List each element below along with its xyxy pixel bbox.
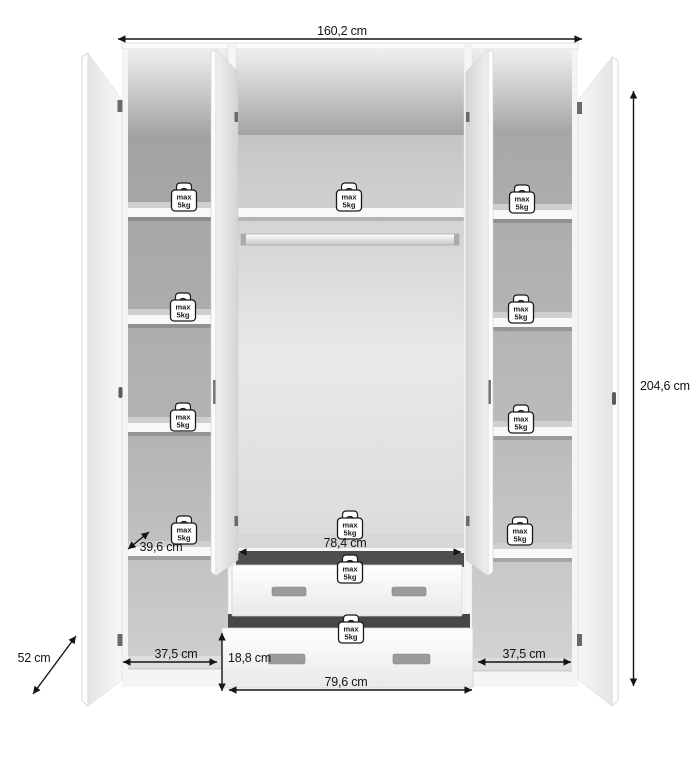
left-plinth [128,668,228,687]
hinge-icon [118,634,123,646]
dimension-label-drawer-width: 79,6 cm [324,675,367,689]
dimension-arrow-total-depth [33,636,76,694]
right-plinth-edge [472,670,572,672]
hinge-icon [235,516,239,526]
badge-text: 5kg [515,313,528,322]
right-side-panel [572,49,578,687]
drawer-handle [393,654,430,664]
door-right [577,57,618,706]
dimension-label-drawer-height: 18,8 cm [228,651,271,665]
hinge-icon [577,634,582,646]
badge-text: 5kg [343,201,356,210]
door-middle-left [211,50,238,576]
wardrobe-dimension-diagram: max 5kg max 5kg max 5kg max 5kg max 5kg … [0,0,700,765]
door-handle [489,380,492,404]
dimension-label-total-depth: 52 cm [17,651,50,665]
dimension-label-right-width: 37,5 cm [502,647,545,661]
badge-text: 5kg [177,311,190,320]
dimension-label-total-height: 204,6 cm [640,379,690,393]
top-panel-edge [122,43,578,49]
door-left [82,53,123,706]
badge-text: 5kg [178,201,191,210]
interior-ceiling [128,49,572,135]
drawer-handle [272,587,306,596]
drawer-handle [268,654,305,664]
hinge-icon [118,100,123,112]
hinge-icon [235,112,239,122]
left-plinth-edge [128,668,228,670]
door-handle [612,392,616,405]
diagram-canvas: max 5kg max 5kg max 5kg max 5kg max 5kg … [0,0,700,765]
badge-text: 5kg [515,423,528,432]
hanging-rail [241,234,459,245]
badge-text: 5kg [345,633,358,642]
drawer-handle [392,587,426,596]
dimension-label-middle-width: 78,4 cm [323,536,366,550]
hinge-icon [577,102,582,114]
badge-text: 5kg [177,421,190,430]
door-middle-right [466,50,493,576]
left-side-panel [122,49,128,687]
dimension-label-left-width: 37,5 cm [154,647,197,661]
door-handle [213,380,216,404]
hinge-icon [466,516,470,526]
hinge-icon [466,112,470,122]
dimension-label-total-width: 160,2 cm [317,24,367,38]
right-plinth [472,670,572,687]
badge-text: 5kg [514,535,527,544]
badge-text: 5kg [344,573,357,582]
badge-text: 5kg [516,203,529,212]
door-handle [119,387,123,398]
dimension-label-shelf-depth: 39,6 cm [139,540,182,554]
